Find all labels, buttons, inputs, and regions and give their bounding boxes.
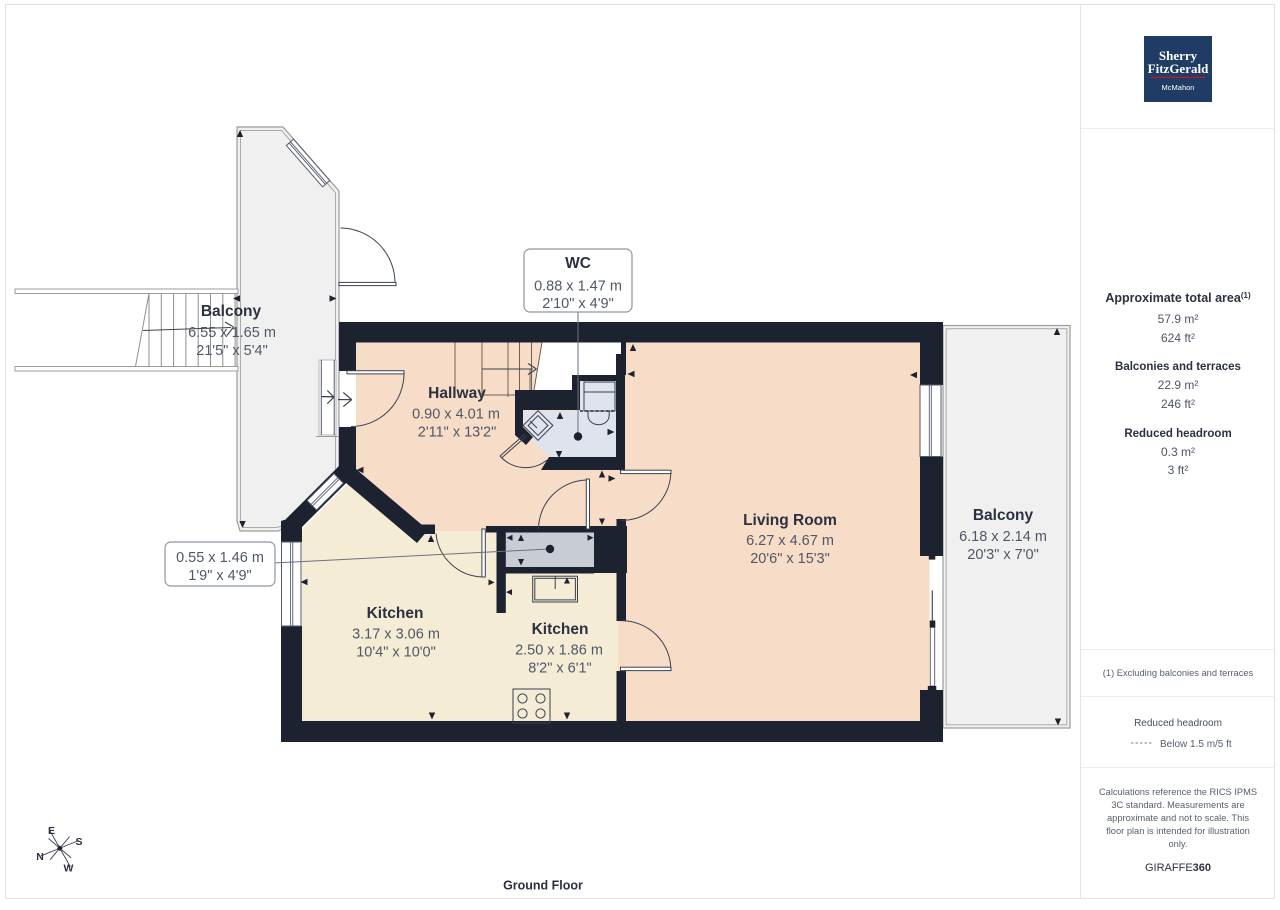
svg-text:2'10" x 4'9": 2'10" x 4'9" [542,296,613,312]
svg-text:Balconies and terraces: Balconies and terraces [1115,361,1241,373]
svg-text:only.: only. [1169,839,1188,849]
svg-text:3.17 x 3.06 m: 3.17 x 3.06 m [352,627,440,643]
svg-text:Living Room: Living Room [743,512,837,529]
svg-text:624 ft²: 624 ft² [1161,331,1195,345]
svg-text:57.9 m²: 57.9 m² [1158,312,1199,326]
svg-text:S: S [75,836,82,848]
svg-text:Kitchen: Kitchen [367,605,424,622]
svg-text:20'3" x 7'0": 20'3" x 7'0" [967,547,1038,563]
svg-text:N: N [36,851,44,863]
svg-text:E: E [48,825,55,837]
svg-text:8'2" x 6'1": 8'2" x 6'1" [528,661,591,677]
svg-text:Balcony: Balcony [973,507,1034,524]
svg-text:approximate and not to scale.: approximate and not to scale. This [1107,813,1249,823]
svg-text:Kitchen: Kitchen [532,621,589,638]
svg-text:2.50 x 1.86 m: 2.50 x 1.86 m [515,643,603,659]
svg-text:1'9" x 4'9": 1'9" x 4'9" [188,568,251,584]
svg-text:2'11" x 13'2": 2'11" x 13'2" [418,425,496,441]
svg-text:22.9 m²: 22.9 m² [1158,378,1199,392]
svg-text:Approximate total area(1): Approximate total area(1) [1105,291,1251,305]
svg-text:Reduced headroom: Reduced headroom [1134,718,1222,729]
svg-text:0.55 x 1.46 m: 0.55 x 1.46 m [176,550,264,566]
svg-text:Ground Floor: Ground Floor [503,879,583,893]
svg-text:6.27 x 4.67 m: 6.27 x 4.67 m [746,533,834,549]
svg-text:McMahon: McMahon [1162,83,1195,92]
svg-text:3C standard. Measurements are: 3C standard. Measurements are [1111,800,1244,810]
svg-text:246 ft²: 246 ft² [1161,397,1195,411]
svg-text:0.3 m²: 0.3 m² [1161,445,1195,459]
svg-text:WC: WC [565,255,591,272]
svg-text:GIRAFFE360: GIRAFFE360 [1145,862,1211,874]
svg-text:0.88 x 1.47 m: 0.88 x 1.47 m [534,279,622,295]
svg-text:Balcony: Balcony [201,303,262,320]
svg-text:W: W [64,863,74,875]
svg-text:0.90 x 4.01 m: 0.90 x 4.01 m [412,407,500,423]
svg-text:floor plan is intended for ill: floor plan is intended for illustration [1106,826,1250,836]
svg-text:21'5" x 5'4": 21'5" x 5'4" [196,343,267,359]
svg-text:FitzGerald: FitzGerald [1148,61,1209,76]
svg-text:Calculations reference the RIC: Calculations reference the RICS IPMS [1099,787,1257,797]
svg-text:6.18 x 2.14 m: 6.18 x 2.14 m [959,529,1047,545]
svg-text:10'4" x 10'0": 10'4" x 10'0" [356,645,436,661]
svg-text:20'6" x 15'3": 20'6" x 15'3" [750,551,830,567]
svg-text:(1) Excluding balconies and te: (1) Excluding balconies and terraces [1103,668,1254,678]
svg-text:Reduced headroom: Reduced headroom [1124,428,1231,440]
svg-text:Hallway: Hallway [428,385,486,402]
svg-text:3 ft²: 3 ft² [1168,463,1189,477]
svg-text:Below 1.5 m/5 ft: Below 1.5 m/5 ft [1160,739,1232,750]
svg-text:6.55 x 1.65 m: 6.55 x 1.65 m [188,325,276,341]
